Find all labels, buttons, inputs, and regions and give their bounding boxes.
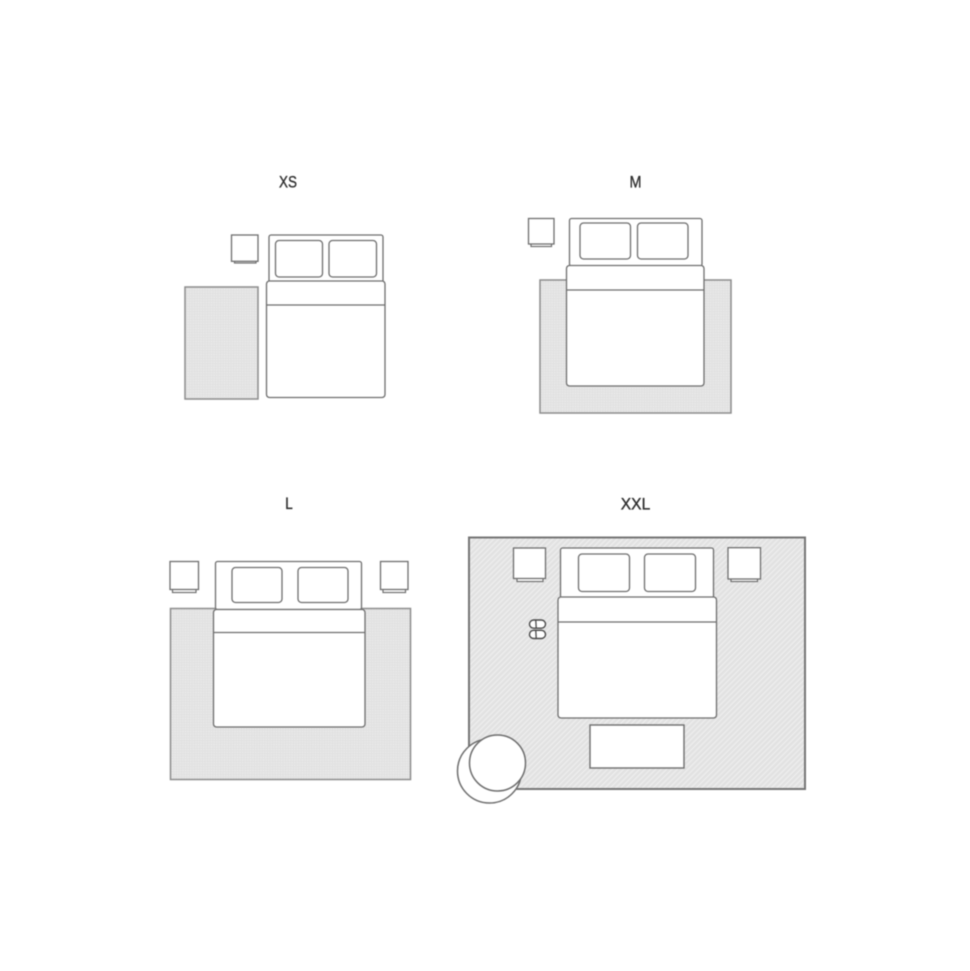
svg-text:L: L: [285, 494, 293, 513]
svg-text:XXL: XXL: [621, 495, 651, 514]
svg-text:M: M: [630, 173, 642, 192]
svg-text:XS: XS: [279, 173, 297, 192]
